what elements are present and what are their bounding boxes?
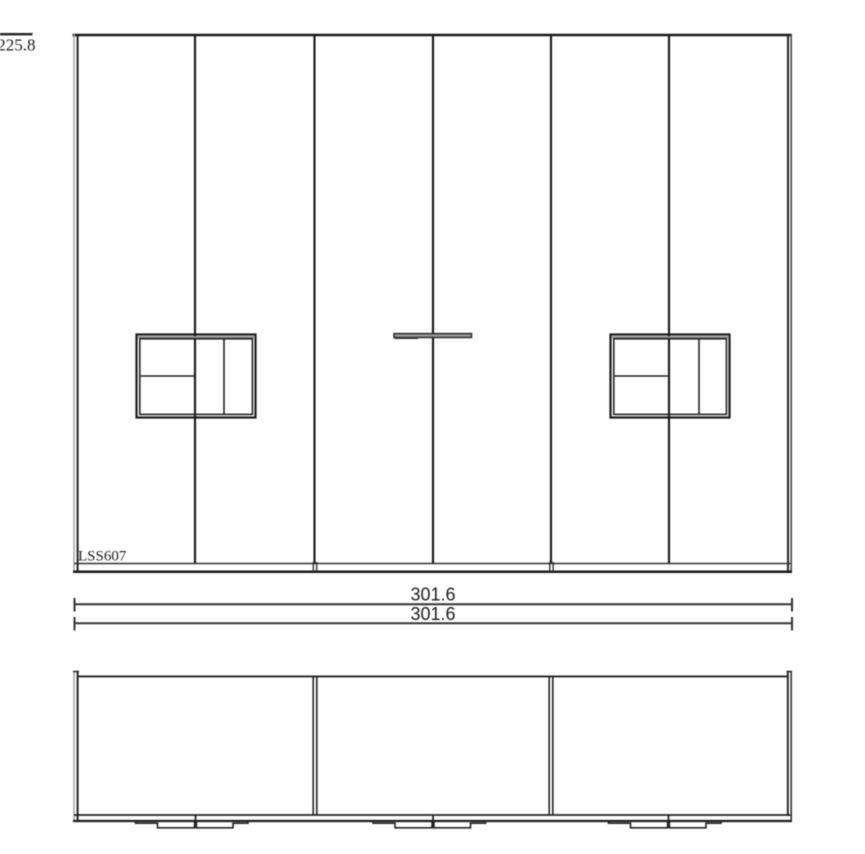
svg-text:225.8: 225.8	[0, 36, 36, 55]
svg-text:LSS607: LSS607	[78, 549, 127, 565]
svg-text:301.6: 301.6	[410, 604, 455, 624]
svg-text:301.6: 301.6	[410, 585, 455, 605]
